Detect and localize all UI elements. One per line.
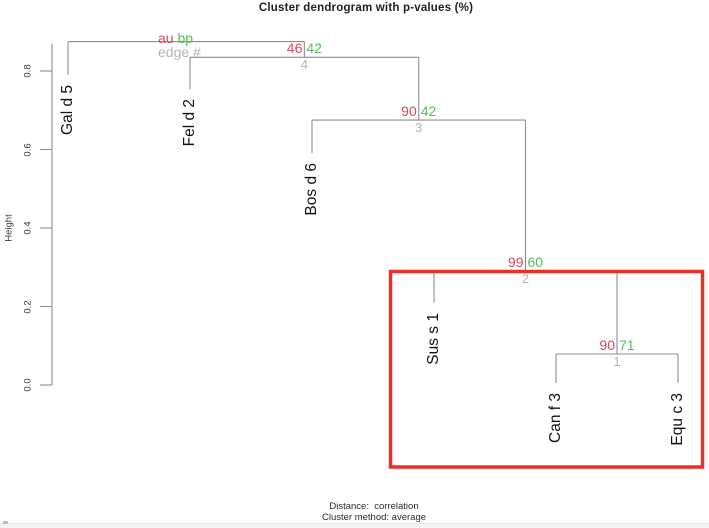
legend-edge-label: edge # bbox=[158, 45, 201, 59]
bp-value: 71 bbox=[619, 338, 640, 352]
y-tick-label: 0.2 bbox=[23, 300, 34, 313]
leaf-label: Sus s 1 bbox=[426, 313, 442, 365]
window-bottom-edge bbox=[0, 523, 709, 528]
bp-value: 60 bbox=[528, 255, 549, 269]
distance-note: Distance: correlation bbox=[39, 502, 709, 513]
dendrogram-canvas bbox=[0, 0, 709, 528]
y-tick-label: 0.8 bbox=[23, 64, 34, 77]
leaf-label: Equ c 3 bbox=[670, 393, 686, 446]
node-pvalues: 9042 bbox=[396, 104, 442, 118]
node-pvalues: 4642 bbox=[281, 41, 327, 55]
pvalue-legend: au bpedge # bbox=[158, 31, 201, 59]
edge-number: 4 bbox=[301, 58, 308, 71]
bp-value: 42 bbox=[306, 41, 327, 55]
chart-title: Cluster dendrogram with p-values (%) bbox=[31, 2, 701, 14]
bp-value: 42 bbox=[421, 104, 442, 118]
leaf-label: Bos d 6 bbox=[304, 163, 320, 216]
footer-note: Distance: correlation Cluster method: av… bbox=[39, 502, 709, 523]
edge-number: 2 bbox=[522, 272, 529, 285]
corner-artifact bbox=[3, 521, 8, 524]
r-plot-window: Cluster dendrogram with p-values (%) au … bbox=[0, 0, 709, 528]
au-value: 90 bbox=[396, 104, 417, 118]
y-tick-label: 0.6 bbox=[23, 143, 34, 156]
node-pvalues: 9960 bbox=[503, 255, 549, 269]
edge-number: 1 bbox=[613, 355, 620, 368]
y-axis-title: Height bbox=[4, 214, 15, 241]
leaf-label: Gal d 5 bbox=[60, 85, 76, 135]
leaf-label: Can f 3 bbox=[548, 393, 564, 443]
y-tick-label: 0.0 bbox=[23, 378, 34, 391]
edge-number: 3 bbox=[415, 121, 422, 134]
au-value: 99 bbox=[503, 255, 524, 269]
au-value: 46 bbox=[281, 41, 302, 55]
leaf-label: Fel d 2 bbox=[182, 99, 198, 146]
node-pvalues: 9071 bbox=[594, 338, 640, 352]
y-tick-label: 0.4 bbox=[23, 221, 34, 234]
au-value: 90 bbox=[594, 338, 615, 352]
cluster-method-note: Cluster method: average bbox=[39, 513, 709, 524]
